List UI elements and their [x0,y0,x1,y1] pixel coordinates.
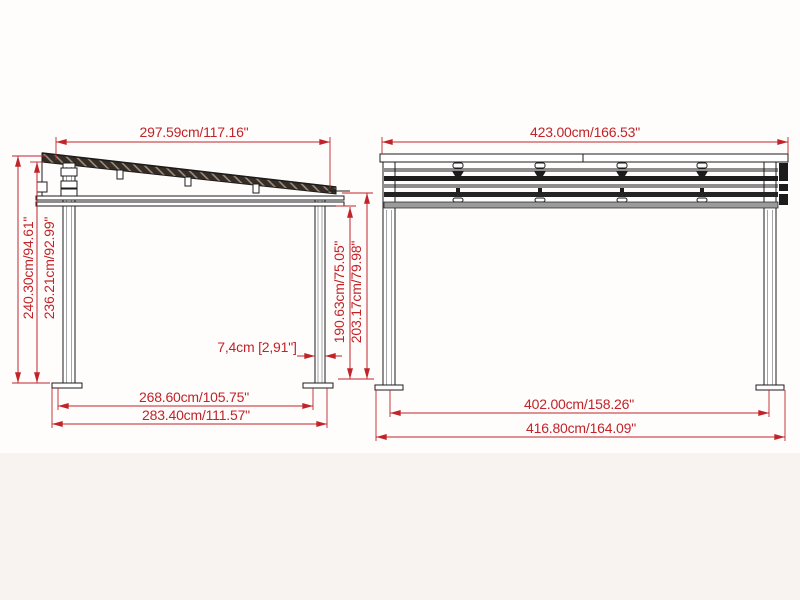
front-view: 423.00cm/166.53" 402.00cm/158.26" 416.80… [375,124,788,441]
front-view-structure [375,154,788,390]
side-view: 297.59cm/117.16" 240.30cm/94.61" 236.21c… [12,124,374,428]
drawing-canvas: 297.59cm/117.16" 240.30cm/94.61" 236.21c… [0,0,800,600]
side-rear-base-plate [52,383,82,388]
side-beam-upper [36,196,344,200]
pergola-dimension-drawing: 297.59cm/117.16" 240.30cm/94.61" 236.21c… [0,0,800,600]
dim-side-height-back-outer-label: 240.30cm/94.61" [20,217,36,320]
side-post-connector [61,189,77,196]
side-view-structure [36,153,350,388]
side-purlin-stub [117,170,123,179]
dim-front-roof-width: 423.00cm/166.53" [382,124,788,154]
dim-front-span-inner: 402.00cm/158.26" [390,390,769,417]
dim-side-roof-width-label: 297.59cm/117.16" [140,124,249,140]
dim-front-roof-width-label: 423.00cm/166.53" [530,124,640,140]
dim-front-span-outer-label: 416.80cm/164.09" [526,420,636,436]
front-fascia [380,154,788,162]
dim-side-span-outer-label: 283.40cm/111.57" [142,407,250,423]
dim-front-span-inner-label: 402.00cm/158.26" [524,396,634,412]
dim-side-height-front-inner-label: 190.63cm/75.05" [331,241,347,344]
front-right-base-plate [756,385,784,390]
side-roof-panel [42,153,336,194]
front-end-bracket-gap [779,191,788,194]
dim-side-post-width-label: 7,4cm [2,91"] [217,339,296,355]
front-shade-band [384,202,778,208]
front-louver-band-upper [384,176,778,181]
side-post-connector [61,181,77,188]
side-front-post [315,196,325,384]
side-front-base-plate [303,383,333,388]
side-rear-bracket [37,182,47,192]
side-purlin-stub [185,177,191,186]
side-purlin-stub [253,184,259,193]
front-louver-band-lower [384,192,778,197]
front-roof-rails [384,163,778,208]
dim-side-height-front-outer-label: 203.17cm/79.98" [348,241,364,344]
dim-side-span-inner-label: 268.60cm/105.75" [139,389,249,405]
side-beam-lower [36,202,344,206]
dim-side-height-back-inner-label: 236.21cm/92.99" [41,217,57,320]
front-end-bracket-gap [779,181,788,184]
side-post-connector [61,168,77,176]
front-left-base-plate [375,385,403,390]
